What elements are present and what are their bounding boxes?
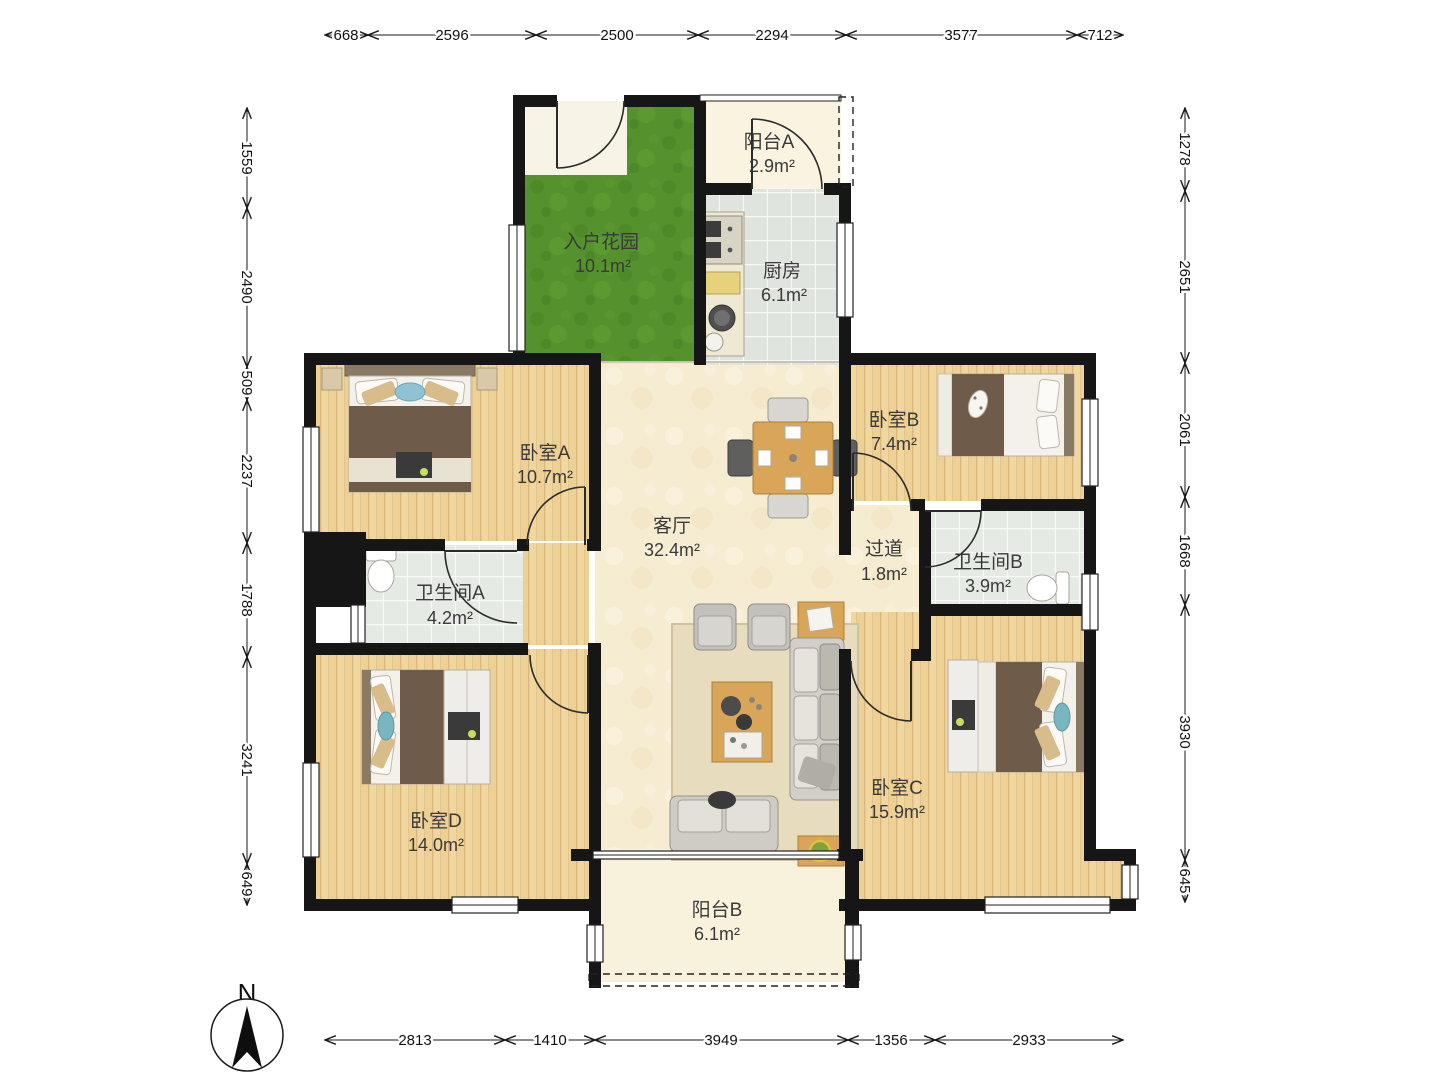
bed-bedroom-d — [362, 670, 490, 784]
svg-text:32.4m²: 32.4m² — [644, 540, 700, 560]
svg-text:4.2m²: 4.2m² — [427, 608, 473, 628]
floor-plan-svg: 阳台A 2.9m² 入户花园 10.1m² 厨房 6.1m² 卧室A 10.7m… — [0, 0, 1440, 1080]
dim-bottom: 1356 — [874, 1032, 907, 1049]
nightstand — [477, 368, 497, 390]
bed-bedroom-b — [938, 374, 1074, 456]
svg-text:客厅: 客厅 — [653, 515, 691, 537]
dim-left: 2490 — [238, 270, 255, 303]
dim-right: 3930 — [1176, 715, 1193, 748]
window — [303, 763, 319, 857]
wardrobe-bedroom-c — [948, 660, 978, 772]
tv-panel — [952, 700, 975, 730]
dim-bottom: 1410 — [533, 1032, 566, 1049]
window — [351, 605, 365, 643]
window — [509, 225, 525, 351]
compass: N — [211, 978, 283, 1071]
loveseat — [670, 791, 778, 852]
svg-text:6.1m²: 6.1m² — [761, 285, 807, 305]
svg-text:阳台B: 阳台B — [692, 899, 743, 921]
svg-text:卧室B: 卧室B — [869, 409, 920, 431]
dim-left: 509 — [238, 370, 255, 395]
svg-text:6.1m²: 6.1m² — [694, 924, 740, 944]
svg-text:10.7m²: 10.7m² — [517, 467, 573, 487]
toilet-bathroom-b — [1027, 572, 1069, 604]
svg-text:7.4m²: 7.4m² — [871, 434, 917, 454]
toilet-bathroom-a — [366, 548, 396, 592]
svg-text:卫生间B: 卫生间B — [953, 551, 1023, 573]
coffee-table — [712, 682, 772, 762]
dim-left: 3241 — [238, 743, 255, 776]
svg-text:卫生间A: 卫生间A — [415, 582, 485, 604]
svg-text:入户花园: 入户花园 — [563, 231, 639, 253]
dim-top: 2596 — [435, 27, 468, 44]
armchair — [748, 604, 790, 650]
dim-top: 712 — [1087, 27, 1112, 44]
floor-plan-page: 阳台A 2.9m² 入户花园 10.1m² 厨房 6.1m² 卧室A 10.7m… — [0, 0, 1440, 1080]
window — [1122, 865, 1138, 899]
window — [452, 897, 518, 913]
entry-door-swing-area — [525, 101, 627, 175]
svg-text:14.0m²: 14.0m² — [408, 835, 464, 855]
dim-left: 649 — [238, 871, 255, 896]
dim-bottom: 2933 — [1012, 1032, 1045, 1049]
svg-text:1.8m²: 1.8m² — [861, 564, 907, 584]
vestibule-floor — [523, 543, 589, 645]
svg-text:卧室A: 卧室A — [520, 442, 571, 464]
window — [985, 897, 1110, 913]
window — [845, 925, 861, 960]
dim-left: 1788 — [238, 583, 255, 616]
window — [837, 223, 853, 317]
armchair — [694, 604, 736, 650]
window — [587, 925, 603, 962]
dim-top: 3577 — [944, 27, 977, 44]
dim-bottom: 2813 — [398, 1032, 431, 1049]
dim-right: 645 — [1176, 868, 1193, 893]
side-table-plant-top — [798, 602, 844, 640]
bed-bedroom-c — [978, 662, 1084, 772]
svg-text:10.1m²: 10.1m² — [575, 256, 631, 276]
svg-text:卧室C: 卧室C — [871, 777, 923, 799]
dining-chair-north — [768, 398, 808, 422]
window — [1082, 399, 1098, 486]
dim-right: 1278 — [1176, 132, 1193, 165]
living-set — [670, 602, 858, 866]
dim-right: 2061 — [1176, 413, 1193, 446]
svg-text:过道: 过道 — [865, 538, 903, 560]
dining-chair-west — [728, 440, 753, 476]
dim-right: 1668 — [1176, 534, 1193, 567]
svg-text:卧室D: 卧室D — [410, 810, 462, 832]
svg-text:阳台A: 阳台A — [744, 131, 795, 153]
svg-text:厨房: 厨房 — [763, 260, 801, 282]
window — [303, 427, 319, 532]
dim-left: 1559 — [238, 141, 255, 174]
window — [1082, 574, 1098, 630]
svg-text:2.9m²: 2.9m² — [749, 156, 795, 176]
dim-top: 668 — [333, 27, 358, 44]
small-appliance — [702, 272, 740, 294]
dining-chair-south — [768, 494, 808, 518]
svg-text:15.9m²: 15.9m² — [869, 802, 925, 822]
sliding-door-balcony-b — [593, 851, 839, 859]
dim-top: 2294 — [755, 27, 788, 44]
dim-left: 2237 — [238, 454, 255, 487]
dim-right: 2651 — [1176, 260, 1193, 293]
dim-top: 2500 — [600, 27, 633, 44]
dim-bottom: 3949 — [704, 1032, 737, 1049]
nightstand — [322, 368, 342, 390]
l-sofa — [790, 638, 844, 800]
svg-text:3.9m²: 3.9m² — [965, 576, 1011, 596]
